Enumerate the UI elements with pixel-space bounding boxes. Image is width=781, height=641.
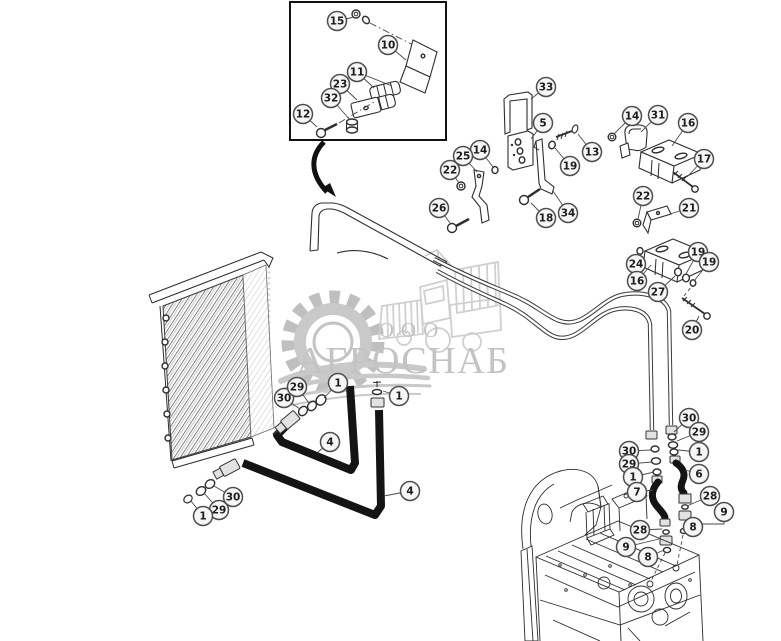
callout-31: 31 xyxy=(641,106,668,133)
svg-text:30: 30 xyxy=(682,413,697,425)
svg-text:28: 28 xyxy=(633,525,648,537)
svg-text:1: 1 xyxy=(334,378,341,390)
callout-14: 14 xyxy=(471,141,494,168)
callout-13: 13 xyxy=(578,134,602,162)
svg-text:32: 32 xyxy=(324,93,339,105)
svg-text:6: 6 xyxy=(695,469,702,481)
callout-1: 1 xyxy=(191,501,213,526)
svg-text:19: 19 xyxy=(702,257,717,269)
callout-9: 9 xyxy=(699,503,734,525)
svg-text:14: 14 xyxy=(625,111,640,123)
callout-1: 1 xyxy=(678,443,709,462)
svg-text:21: 21 xyxy=(682,203,697,215)
callout-6: 6 xyxy=(685,465,709,484)
parts-diagram-page: ООО АГРОСНАБ xyxy=(0,0,781,641)
pointer-arrow xyxy=(314,142,336,197)
callout-4: 4 xyxy=(384,482,420,501)
svg-text:19: 19 xyxy=(563,161,578,173)
svg-text:30: 30 xyxy=(277,393,292,405)
callout-19: 19 xyxy=(555,148,580,176)
svg-text:27: 27 xyxy=(651,287,666,299)
oil-cooler xyxy=(149,252,274,468)
watermark-company-name: АГРОСНАБ xyxy=(297,340,510,382)
callout-1: 1 xyxy=(383,387,409,406)
svg-text:5: 5 xyxy=(539,118,546,130)
callout-34: 34 xyxy=(553,191,578,223)
svg-text:4: 4 xyxy=(326,437,333,449)
svg-text:25: 25 xyxy=(456,151,471,163)
svg-text:8: 8 xyxy=(689,522,696,534)
svg-text:17: 17 xyxy=(697,154,712,166)
svg-text:9: 9 xyxy=(622,542,629,554)
callout-21: 21 xyxy=(670,199,699,218)
exploded-parts-diagram: ООО АГРОСНАБ xyxy=(0,0,781,641)
right-top-group xyxy=(608,125,702,192)
callout-26: 26 xyxy=(430,199,451,224)
svg-text:34: 34 xyxy=(561,208,576,220)
svg-text:1: 1 xyxy=(695,447,702,459)
callout-18: 18 xyxy=(531,203,556,228)
svg-text:30: 30 xyxy=(226,492,241,504)
svg-text:16: 16 xyxy=(630,276,645,288)
svg-text:29: 29 xyxy=(212,505,227,517)
svg-text:16: 16 xyxy=(681,118,696,130)
svg-text:1: 1 xyxy=(199,511,206,523)
svg-text:1: 1 xyxy=(629,472,636,484)
callout-5: 5 xyxy=(531,114,553,140)
callout-8: 8 xyxy=(639,548,665,567)
svg-text:7: 7 xyxy=(633,487,640,499)
frame-handrail xyxy=(310,203,447,266)
callout-27: 27 xyxy=(649,276,676,302)
svg-text:8: 8 xyxy=(644,552,651,564)
svg-text:24: 24 xyxy=(629,259,644,271)
svg-text:1: 1 xyxy=(395,391,402,403)
svg-text:15: 15 xyxy=(330,16,345,28)
svg-text:11: 11 xyxy=(350,67,365,79)
svg-text:26: 26 xyxy=(432,203,447,215)
transmission-drawing xyxy=(521,469,703,641)
svg-text:29: 29 xyxy=(290,382,305,394)
svg-text:10: 10 xyxy=(381,40,396,52)
callout-4: 4 xyxy=(318,433,340,453)
svg-text:31: 31 xyxy=(651,110,666,122)
callout-24: 24 xyxy=(627,253,646,274)
callout-20: 20 xyxy=(683,316,702,340)
svg-text:13: 13 xyxy=(585,147,600,159)
callout-22: 22 xyxy=(441,161,460,184)
svg-text:22: 22 xyxy=(443,165,458,177)
inset-detail-box xyxy=(290,2,446,140)
callout-16: 16 xyxy=(672,114,698,147)
svg-text:4: 4 xyxy=(406,486,413,498)
svg-text:22: 22 xyxy=(636,191,651,203)
svg-text:29: 29 xyxy=(692,427,707,439)
svg-text:14: 14 xyxy=(473,145,488,157)
watermark-company-type: ООО xyxy=(379,318,446,342)
svg-text:12: 12 xyxy=(296,109,311,121)
callout-28: 28 xyxy=(687,487,720,507)
svg-text:28: 28 xyxy=(703,491,718,503)
svg-text:20: 20 xyxy=(685,325,700,337)
callout-33: 33 xyxy=(531,78,556,100)
callout-28: 28 xyxy=(631,521,663,540)
svg-text:9: 9 xyxy=(720,507,727,519)
svg-text:33: 33 xyxy=(539,82,554,94)
callout-8: 8 xyxy=(684,518,703,537)
svg-text:18: 18 xyxy=(539,213,554,225)
